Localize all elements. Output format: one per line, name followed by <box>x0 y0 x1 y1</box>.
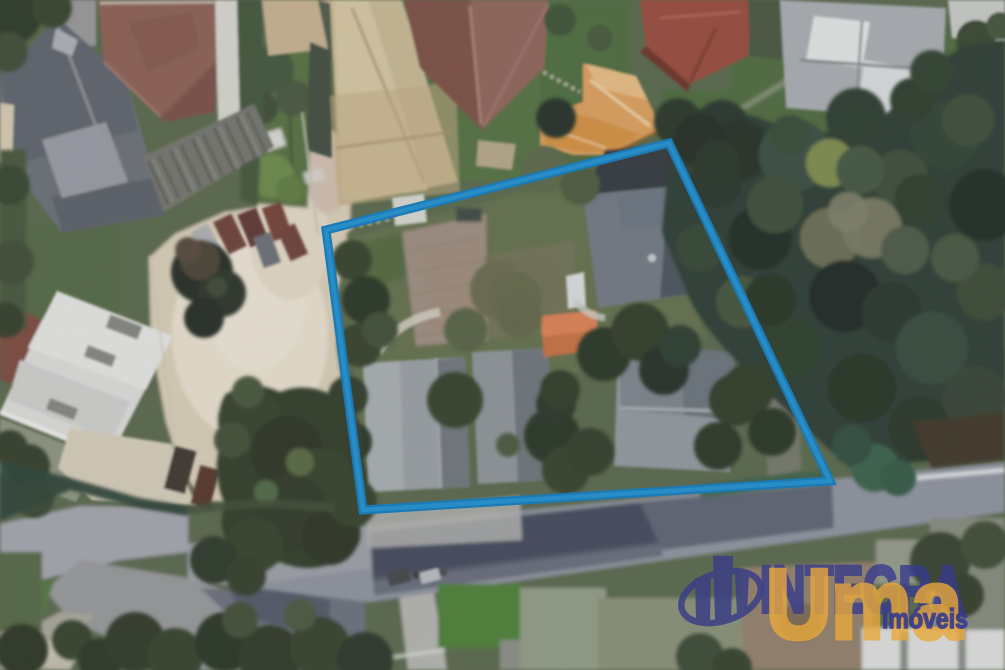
svg-text:imóveis: imóveis <box>882 603 968 634</box>
